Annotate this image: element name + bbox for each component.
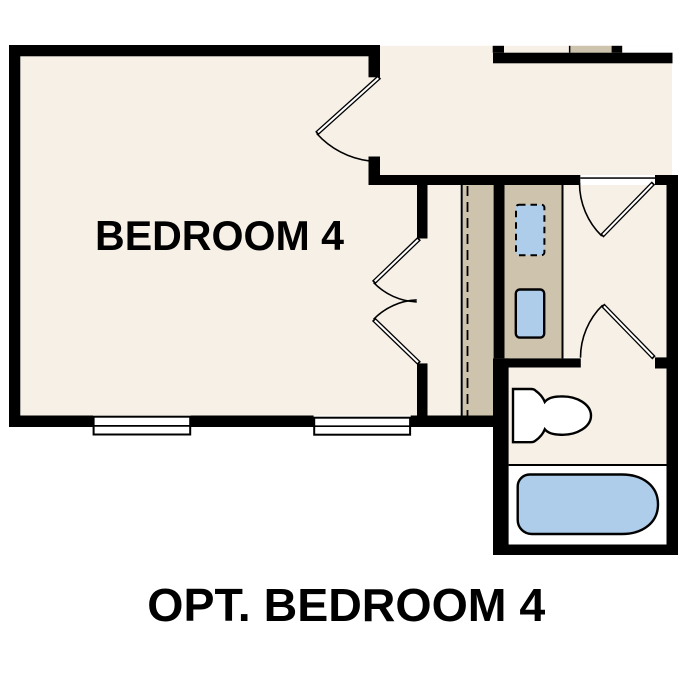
svg-text:OPT. BEDROOM 4: OPT. BEDROOM 4 — [147, 579, 545, 631]
svg-text:BEDROOM 4: BEDROOM 4 — [95, 212, 345, 259]
